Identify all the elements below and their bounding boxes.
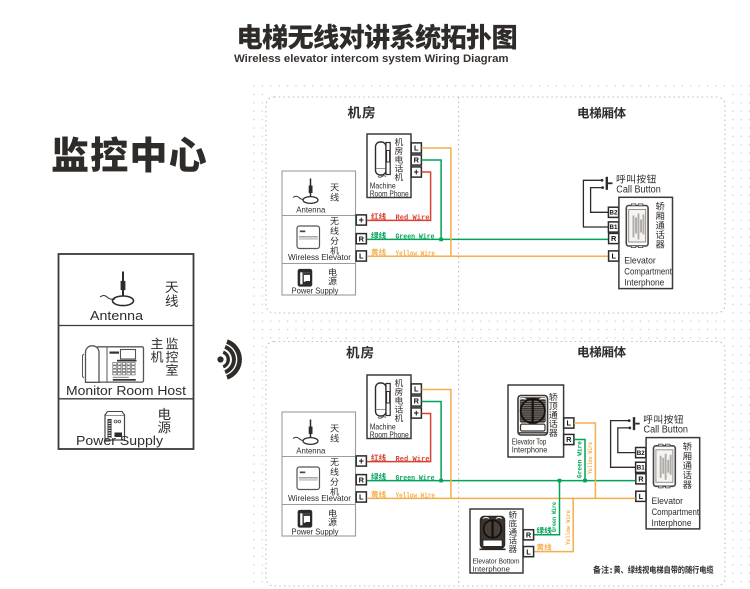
svg-text:Wireless Elevator: Wireless Elevator: [288, 252, 351, 262]
svg-text:+: +: [359, 456, 364, 466]
svg-text:Interphone: Interphone: [473, 565, 511, 574]
svg-text:R: R: [638, 475, 644, 484]
svg-text:Antenna: Antenna: [296, 204, 325, 214]
svg-text:Elevator: Elevator: [652, 495, 684, 506]
svg-text:R: R: [526, 531, 532, 540]
svg-text:Red Wire: Red Wire: [396, 215, 430, 223]
svg-text:Yellow Wire: Yellow Wire: [396, 250, 436, 258]
svg-text:Yellow Wire: Yellow Wire: [587, 442, 594, 474]
svg-text:L: L: [611, 252, 616, 261]
svg-text:B2: B2: [610, 210, 618, 217]
svg-text:R: R: [359, 475, 365, 484]
svg-text:Interphone: Interphone: [652, 517, 692, 528]
svg-text:Room Phone: Room Phone: [370, 188, 409, 198]
svg-text:Yellow Wire: Yellow Wire: [565, 510, 572, 545]
svg-text:L: L: [359, 493, 364, 502]
svg-text:Compartment: Compartment: [624, 266, 672, 277]
svg-text:L: L: [414, 144, 419, 153]
svg-text:Antenna: Antenna: [296, 445, 325, 455]
svg-text:Green Wire: Green Wire: [551, 502, 558, 532]
svg-text:L: L: [359, 252, 364, 261]
svg-text:L: L: [526, 547, 531, 556]
svg-text:R: R: [566, 435, 572, 444]
svg-text:Call Button: Call Button: [644, 425, 689, 436]
svg-text:Call Button: Call Button: [616, 184, 661, 195]
svg-text:Yellow Wire: Yellow Wire: [396, 493, 436, 501]
svg-text:Antenna: Antenna: [90, 308, 144, 323]
svg-text:Green Wire: Green Wire: [396, 475, 435, 483]
svg-text:Red Wire: Red Wire: [396, 456, 430, 464]
svg-text:Monitor Room Host: Monitor Room Host: [66, 383, 186, 398]
svg-text:B1: B1: [610, 224, 618, 231]
svg-text:Wireless Elevator: Wireless Elevator: [288, 493, 351, 503]
svg-text:Green Wire: Green Wire: [396, 234, 435, 242]
svg-text:Elevator: Elevator: [624, 255, 656, 266]
svg-text:L: L: [567, 419, 572, 428]
svg-text:+: +: [414, 167, 419, 177]
svg-text:Interphone: Interphone: [512, 446, 548, 455]
svg-text:Wireless elevator intercom sys: Wireless elevator intercom system Wiring…: [234, 53, 509, 65]
svg-text:R: R: [414, 156, 420, 165]
svg-text:R: R: [359, 234, 365, 243]
svg-text:Compartment: Compartment: [652, 506, 700, 517]
svg-text:B2: B2: [637, 450, 645, 457]
svg-text:Interphone: Interphone: [624, 277, 664, 288]
svg-text:B1: B1: [637, 465, 645, 472]
svg-text:Green Wire: Green Wire: [577, 441, 584, 478]
svg-text:+: +: [359, 215, 364, 225]
svg-text:+: +: [414, 408, 419, 418]
svg-text:R: R: [611, 234, 617, 243]
svg-text:R: R: [414, 397, 420, 406]
svg-text:Power Supply: Power Supply: [292, 285, 340, 295]
svg-text:L: L: [639, 492, 644, 501]
svg-text:L: L: [414, 385, 419, 394]
svg-text:Power Supply: Power Supply: [292, 526, 340, 536]
svg-text:Room Phone: Room Phone: [370, 429, 409, 439]
svg-text:Power Supply: Power Supply: [76, 433, 163, 448]
